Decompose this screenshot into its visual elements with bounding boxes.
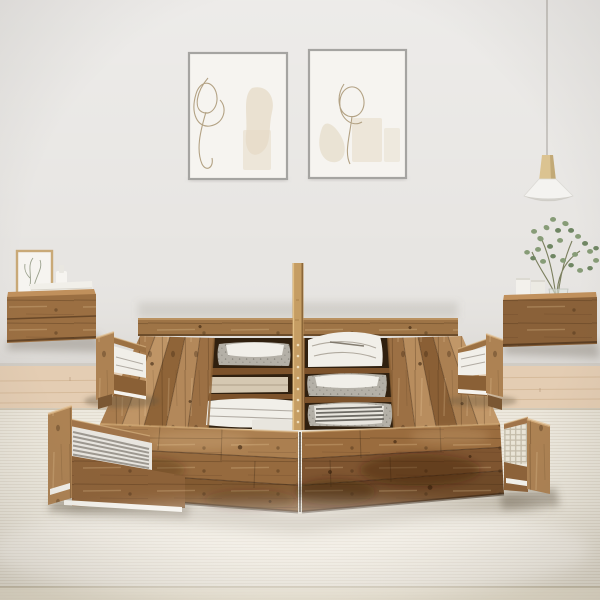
scene-image — [0, 0, 600, 600]
vignette — [0, 0, 600, 600]
bedroom-photo — [0, 0, 600, 600]
